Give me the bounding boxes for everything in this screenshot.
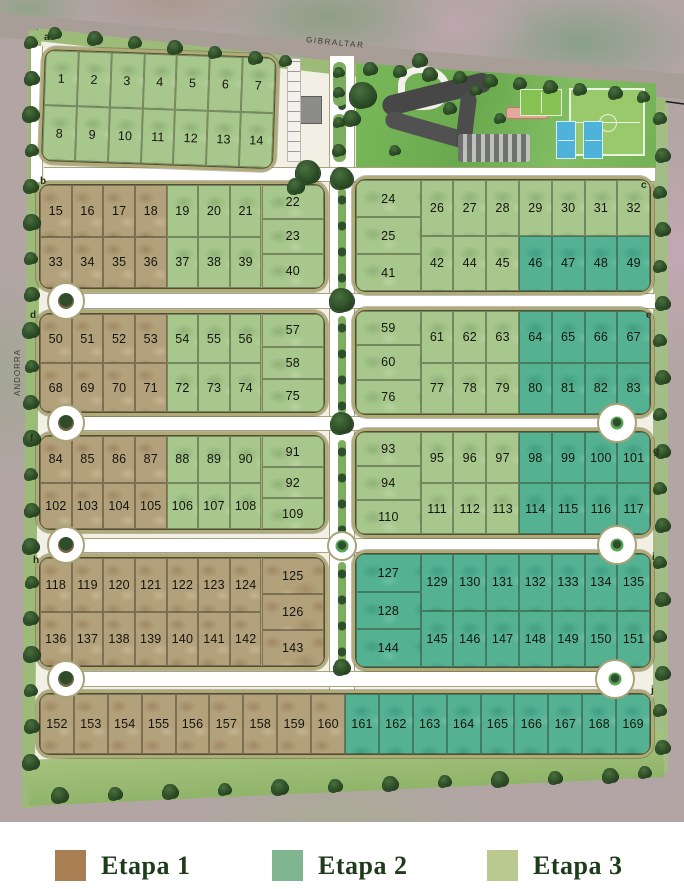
legend: Etapa 1 Etapa 2 Etapa 3	[0, 822, 684, 889]
tree	[24, 214, 40, 230]
lot-104[interactable]: 104	[103, 483, 135, 530]
tree	[654, 482, 666, 494]
lot-93[interactable]: 93	[356, 432, 421, 466]
lot-97[interactable]: 97	[486, 432, 519, 483]
lot-127[interactable]: 127	[356, 554, 421, 592]
cul-de-sac-island	[58, 537, 74, 553]
tree	[656, 148, 670, 162]
tree	[549, 771, 562, 784]
lot-53[interactable]: 53	[135, 314, 167, 363]
lot-79[interactable]: 79	[486, 363, 519, 415]
lot-99[interactable]: 99	[552, 432, 585, 483]
lot-94[interactable]: 94	[356, 466, 421, 500]
lot-119[interactable]: 119	[72, 558, 104, 612]
lot-88[interactable]: 88	[167, 436, 199, 483]
tree	[333, 144, 345, 156]
tree	[603, 768, 618, 783]
lot-70[interactable]: 70	[103, 363, 135, 412]
street-label-andorra: ANDORRA	[13, 349, 22, 396]
lot-154[interactable]: 154	[108, 694, 142, 754]
lot-113[interactable]: 113	[486, 483, 519, 534]
tree	[49, 27, 61, 39]
tree	[654, 704, 666, 716]
tree	[394, 65, 406, 77]
tree	[24, 395, 38, 409]
avenue-median	[338, 316, 346, 414]
lot-118[interactable]: 118	[40, 558, 72, 612]
masterplan: 1234567891011121314151617181920213334353…	[0, 0, 684, 889]
block-d-right-stack-column: 596076	[356, 311, 421, 414]
lot-71[interactable]: 71	[135, 363, 167, 412]
block-h-left: 1181191201211221231241361371381391401411…	[36, 554, 328, 670]
lot-5[interactable]: 5	[175, 55, 210, 111]
entrance-parking-strip	[287, 58, 301, 162]
tree	[25, 684, 37, 696]
lot-110[interactable]: 110	[356, 500, 421, 534]
tree	[656, 740, 670, 754]
lot-87[interactable]: 87	[135, 436, 167, 483]
lot-151[interactable]: 151	[617, 611, 650, 668]
legend-swatch-etapa-2	[272, 850, 303, 881]
tree	[495, 113, 505, 123]
cul-de-sac-west-4	[47, 660, 85, 698]
tree	[23, 106, 39, 122]
lot-12[interactable]: 12	[173, 110, 208, 166]
lot-47[interactable]: 47	[552, 236, 585, 292]
tree	[23, 538, 39, 554]
avenue-median	[338, 562, 346, 668]
lot-157[interactable]: 157	[209, 694, 243, 754]
corner-label-c: c	[641, 181, 647, 191]
tree	[484, 74, 497, 87]
lot-40[interactable]: 40	[262, 254, 324, 288]
tree	[639, 766, 651, 778]
lot-140[interactable]: 140	[167, 612, 199, 666]
lot-62[interactable]: 62	[453, 311, 486, 363]
corner-label-d: d	[30, 311, 36, 321]
tree	[654, 630, 666, 642]
lot-3[interactable]: 3	[110, 52, 145, 108]
block-a: 1234567891011121314	[38, 46, 280, 172]
lot-81[interactable]: 81	[552, 363, 585, 415]
lot-13[interactable]: 13	[206, 111, 241, 167]
lot-86[interactable]: 86	[103, 436, 135, 483]
lot-84[interactable]: 84	[40, 436, 72, 483]
lot-137[interactable]: 137	[72, 612, 104, 666]
block-h-left-stack-column: 125126143	[262, 558, 324, 666]
lot-168[interactable]: 168	[582, 694, 616, 754]
tree	[334, 117, 344, 127]
block-f-left-stack-column: 9192109	[262, 436, 324, 529]
lot-160[interactable]: 160	[311, 694, 345, 754]
cul-de-sac-west-2	[47, 404, 85, 442]
corner-label-j: j	[651, 686, 654, 696]
tree	[331, 167, 353, 189]
lot-72[interactable]: 72	[167, 363, 199, 412]
lot-61[interactable]: 61	[421, 311, 454, 363]
lot-19[interactable]: 19	[167, 185, 199, 237]
cul-de-sac-island	[58, 293, 74, 309]
lot-35[interactable]: 35	[103, 237, 135, 289]
lot-166[interactable]: 166	[514, 694, 548, 754]
legend-item-etapa-1: Etapa 1	[55, 850, 190, 881]
tree	[330, 288, 354, 312]
lot-147[interactable]: 147	[486, 611, 519, 668]
tree	[514, 77, 526, 89]
legend-swatch-etapa-3	[487, 850, 518, 881]
tree	[25, 71, 39, 85]
lot-126[interactable]: 126	[262, 594, 324, 630]
block-f-right-stack-column: 9394110	[356, 432, 421, 534]
tree	[492, 771, 508, 787]
tree	[656, 592, 670, 606]
mini-roundabout-center	[327, 531, 357, 561]
lot-6[interactable]: 6	[208, 56, 243, 112]
tree	[383, 776, 398, 791]
lot-30[interactable]: 30	[552, 180, 585, 236]
cul-de-sac-east-1	[597, 403, 637, 443]
lot-124[interactable]: 124	[230, 558, 262, 612]
tree	[656, 370, 670, 384]
corner-label-f: f	[30, 434, 33, 444]
lot-123[interactable]: 123	[198, 558, 230, 612]
lot-55[interactable]: 55	[198, 314, 230, 363]
tree	[23, 754, 39, 770]
lot-106[interactable]: 106	[167, 483, 199, 530]
tree	[25, 287, 39, 301]
lot-65[interactable]: 65	[552, 311, 585, 363]
lot-34[interactable]: 34	[72, 237, 104, 289]
lot-153[interactable]: 153	[74, 694, 108, 754]
tree	[334, 67, 344, 77]
avenue-median	[338, 188, 346, 290]
lot-33[interactable]: 33	[40, 237, 72, 289]
lot-96[interactable]: 96	[453, 432, 486, 483]
lot-120[interactable]: 120	[103, 558, 135, 612]
lot-20[interactable]: 20	[198, 185, 230, 237]
avenue-median	[338, 440, 346, 534]
lot-130[interactable]: 130	[453, 554, 486, 611]
lot-26[interactable]: 26	[421, 180, 454, 236]
lot-23[interactable]: 23	[262, 219, 324, 253]
roundabout-island	[336, 540, 349, 553]
lot-39[interactable]: 39	[230, 237, 262, 289]
corner-label-h: h	[33, 556, 39, 566]
lot-152[interactable]: 152	[40, 694, 74, 754]
lot-80[interactable]: 80	[519, 363, 552, 415]
tree	[444, 102, 456, 114]
cul-de-sac-east-2	[597, 525, 637, 565]
lot-125[interactable]: 125	[262, 558, 324, 594]
lot-59[interactable]: 59	[356, 311, 421, 345]
tree	[638, 91, 649, 102]
lot-121[interactable]: 121	[135, 558, 167, 612]
lot-54[interactable]: 54	[167, 314, 199, 363]
lot-142[interactable]: 142	[230, 612, 262, 666]
lot-41[interactable]: 41	[356, 254, 421, 291]
lot-46[interactable]: 46	[519, 236, 552, 292]
tree	[544, 80, 557, 93]
tree	[344, 110, 360, 126]
lot-50[interactable]: 50	[40, 314, 72, 363]
tree	[163, 784, 178, 799]
tree	[26, 144, 38, 156]
tree	[23, 322, 39, 338]
tree	[219, 783, 231, 795]
tree	[574, 83, 586, 95]
corner-label-a: a	[44, 33, 50, 43]
lot-66[interactable]: 66	[585, 311, 618, 363]
tree	[656, 666, 670, 680]
lot-148[interactable]: 148	[519, 611, 552, 668]
cul-de-sac-island	[58, 671, 74, 687]
tree	[609, 86, 622, 99]
lot-149[interactable]: 149	[552, 611, 585, 668]
corner-label-e: e	[646, 311, 652, 321]
lot-38[interactable]: 38	[198, 237, 230, 289]
block-f-left: 8485868788899010210310410510610710891921…	[36, 432, 328, 533]
legend-label-etapa-1: Etapa 1	[101, 850, 190, 881]
lot-132[interactable]: 132	[519, 554, 552, 611]
lot-4[interactable]: 4	[142, 54, 177, 110]
lot-8[interactable]: 8	[42, 105, 77, 161]
lot-60[interactable]: 60	[356, 345, 421, 379]
cul-de-sac-island	[58, 415, 74, 431]
lot-57[interactable]: 57	[262, 314, 324, 347]
corner-label-g: g	[653, 447, 659, 457]
legend-label-etapa-2: Etapa 2	[318, 850, 407, 881]
lot-159[interactable]: 159	[277, 694, 311, 754]
block-b-right-stack-column: 242541	[356, 180, 421, 291]
lot-129[interactable]: 129	[421, 554, 454, 611]
lot-107[interactable]: 107	[198, 483, 230, 530]
tree	[129, 36, 141, 48]
lot-27[interactable]: 27	[453, 180, 486, 236]
lot-31[interactable]: 31	[585, 180, 618, 236]
lot-114[interactable]: 114	[519, 483, 552, 534]
tree	[654, 260, 666, 272]
lot-143[interactable]: 143	[262, 630, 324, 666]
tree	[25, 36, 37, 48]
block-j: 1521531541551561571581591601611621631641…	[36, 690, 654, 758]
lot-155[interactable]: 155	[142, 694, 176, 754]
lot-25[interactable]: 25	[356, 217, 421, 254]
entrance-gatehouse	[300, 96, 322, 124]
lot-24[interactable]: 24	[356, 180, 421, 217]
lot-2[interactable]: 2	[77, 51, 112, 107]
block-d-left: 5051525354555668697071727374575875	[36, 310, 328, 416]
cul-de-sac-east-3	[595, 659, 635, 699]
lot-136[interactable]: 136	[40, 612, 72, 666]
lot-90[interactable]: 90	[230, 436, 262, 483]
lot-144[interactable]: 144	[356, 629, 421, 667]
tree	[26, 576, 38, 588]
lot-139[interactable]: 139	[135, 612, 167, 666]
lot-51[interactable]: 51	[72, 314, 104, 363]
lot-95[interactable]: 95	[421, 432, 454, 483]
tree	[24, 611, 38, 625]
lot-158[interactable]: 158	[243, 694, 277, 754]
lot-15[interactable]: 15	[40, 185, 72, 237]
lot-75[interactable]: 75	[262, 379, 324, 412]
block-d-right: 5960766162636465666777787980818283	[352, 307, 654, 418]
lot-18[interactable]: 18	[135, 185, 167, 237]
block-f-right: 9394110959697989910010111111211311411511…	[352, 428, 654, 538]
lot-122[interactable]: 122	[167, 558, 199, 612]
lot-131[interactable]: 131	[486, 554, 519, 611]
block-d-left-stack-column: 575875	[262, 314, 324, 412]
lot-167[interactable]: 167	[548, 694, 582, 754]
lot-48[interactable]: 48	[585, 236, 618, 292]
lot-45[interactable]: 45	[486, 236, 519, 292]
lot-63[interactable]: 63	[486, 311, 519, 363]
lot-14[interactable]: 14	[239, 112, 274, 168]
lot-85[interactable]: 85	[72, 436, 104, 483]
lot-10[interactable]: 10	[108, 107, 143, 163]
lot-165[interactable]: 165	[481, 694, 515, 754]
tree	[25, 503, 39, 517]
tree	[25, 719, 39, 733]
tree	[334, 659, 350, 675]
tree	[26, 360, 38, 372]
lot-29[interactable]: 29	[519, 180, 552, 236]
lot-52[interactable]: 52	[103, 314, 135, 363]
legend-label-etapa-3: Etapa 3	[533, 850, 622, 881]
lot-64[interactable]: 64	[519, 311, 552, 363]
lot-74[interactable]: 74	[230, 363, 262, 412]
block-b-left-stack-column: 222340	[262, 185, 324, 288]
lot-141[interactable]: 141	[198, 612, 230, 666]
tennis-court-1	[556, 121, 576, 159]
tree	[654, 112, 666, 124]
tennis-court-2	[583, 121, 603, 159]
corner-label-b: b	[40, 177, 46, 187]
lot-112[interactable]: 112	[453, 483, 486, 534]
lot-77[interactable]: 77	[421, 363, 454, 415]
tree	[656, 222, 670, 236]
block-h-right-stack-column: 127128144	[356, 554, 421, 667]
lot-103[interactable]: 103	[72, 483, 104, 530]
tree	[350, 82, 376, 108]
lot-17[interactable]: 17	[103, 185, 135, 237]
block-b-left: 1516171819202133343536373839222340	[36, 181, 328, 292]
lot-108[interactable]: 108	[230, 483, 262, 530]
lot-164[interactable]: 164	[447, 694, 481, 754]
lot-91[interactable]: 91	[262, 436, 324, 467]
tree	[280, 55, 291, 66]
lot-73[interactable]: 73	[198, 363, 230, 412]
block-h-right: 1271281441291301311321331341351451461471…	[352, 550, 654, 671]
legend-item-etapa-2: Etapa 2	[272, 850, 407, 881]
tree	[454, 71, 466, 83]
tree	[25, 252, 37, 264]
lot-49[interactable]: 49	[617, 236, 650, 292]
lot-105[interactable]: 105	[135, 483, 167, 530]
tree	[654, 556, 666, 568]
lot-16[interactable]: 16	[72, 185, 104, 237]
legend-item-etapa-3: Etapa 3	[487, 850, 622, 881]
lot-169[interactable]: 169	[616, 694, 650, 754]
lot-92[interactable]: 92	[262, 467, 324, 498]
tree	[423, 67, 437, 81]
lot-89[interactable]: 89	[198, 436, 230, 483]
lot-145[interactable]: 145	[421, 611, 454, 668]
soccer-field	[569, 88, 645, 156]
lot-21[interactable]: 21	[230, 185, 262, 237]
lot-146[interactable]: 146	[453, 611, 486, 668]
cul-de-sac-island	[609, 673, 622, 686]
tree	[471, 85, 481, 95]
tree	[413, 53, 427, 67]
lot-133[interactable]: 133	[552, 554, 585, 611]
lot-56[interactable]: 56	[230, 314, 262, 363]
lot-109[interactable]: 109	[262, 498, 324, 529]
lot-115[interactable]: 115	[552, 483, 585, 534]
lot-128[interactable]: 128	[356, 592, 421, 630]
tree	[288, 178, 304, 194]
tree	[656, 296, 670, 310]
tree	[168, 40, 182, 54]
cul-de-sac-west-1	[47, 282, 85, 320]
lot-163[interactable]: 163	[413, 694, 447, 754]
cul-de-sac-island	[611, 539, 624, 552]
tree	[654, 334, 666, 346]
tree	[52, 787, 68, 803]
cul-de-sac-island	[611, 417, 624, 430]
tree	[654, 408, 666, 420]
lot-7[interactable]: 7	[241, 57, 276, 113]
lot-44[interactable]: 44	[453, 236, 486, 292]
lot-98[interactable]: 98	[519, 432, 552, 483]
tree	[390, 145, 400, 155]
tree	[329, 779, 342, 792]
tree	[656, 518, 670, 532]
tree	[364, 62, 377, 75]
lot-161[interactable]: 161	[345, 694, 379, 754]
lot-102[interactable]: 102	[40, 483, 72, 530]
lot-37[interactable]: 37	[167, 237, 199, 289]
tree	[24, 179, 38, 193]
lot-36[interactable]: 36	[135, 237, 167, 289]
tree	[209, 46, 221, 58]
lot-58[interactable]: 58	[262, 347, 324, 380]
tree	[249, 51, 262, 64]
lot-9[interactable]: 9	[75, 106, 110, 162]
lot-28[interactable]: 28	[486, 180, 519, 236]
lot-11[interactable]: 11	[141, 109, 176, 165]
tree	[88, 31, 102, 45]
tree	[109, 787, 122, 800]
tree	[272, 779, 288, 795]
lot-1[interactable]: 1	[44, 50, 79, 106]
lot-69[interactable]: 69	[72, 363, 104, 412]
lot-76[interactable]: 76	[356, 380, 421, 414]
lot-111[interactable]: 111	[421, 483, 454, 534]
tree	[331, 412, 353, 434]
lot-162[interactable]: 162	[379, 694, 413, 754]
lot-156[interactable]: 156	[176, 694, 210, 754]
cul-de-sac-west-3	[47, 526, 85, 564]
multisport-court	[520, 89, 562, 116]
amenity-parking	[458, 134, 530, 162]
lot-42[interactable]: 42	[421, 236, 454, 292]
tree	[334, 87, 344, 97]
lot-138[interactable]: 138	[103, 612, 135, 666]
block-b-right: 2425412627282930313242444546474849	[352, 176, 654, 295]
lot-78[interactable]: 78	[453, 363, 486, 415]
tree	[439, 775, 451, 787]
tree	[24, 646, 40, 662]
